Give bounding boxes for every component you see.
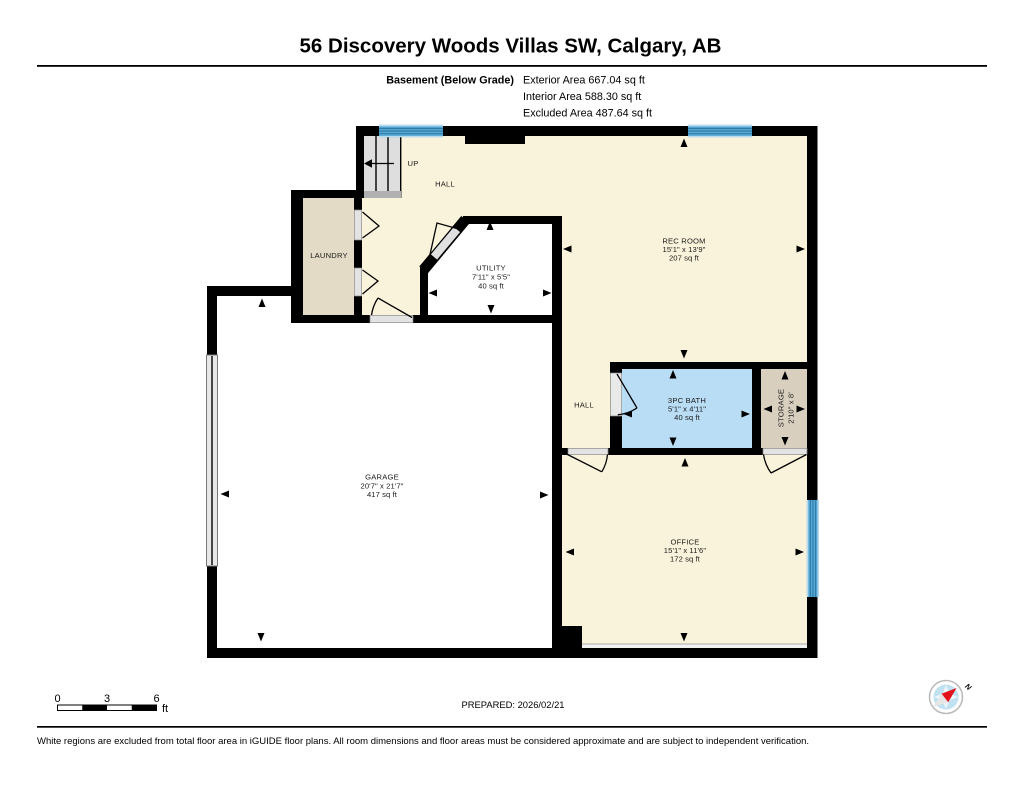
svg-text:7'11" x 5'5": 7'11" x 5'5" — [472, 273, 510, 282]
svg-text:Basement (Below Grade): Basement (Below Grade) — [386, 75, 514, 87]
svg-text:172 sq ft: 172 sq ft — [670, 555, 701, 564]
svg-text:3: 3 — [104, 693, 110, 705]
svg-text:Exterior Area 667.04 sq ft: Exterior Area 667.04 sq ft — [523, 75, 645, 87]
svg-text:0: 0 — [54, 693, 60, 705]
svg-text:HALL: HALL — [574, 401, 594, 410]
svg-text:Excluded Area 487.64 sq ft: Excluded Area 487.64 sq ft — [523, 107, 652, 119]
svg-text:417 sq ft: 417 sq ft — [367, 490, 398, 499]
svg-text:40 sq ft: 40 sq ft — [478, 282, 504, 291]
svg-text:GARAGE: GARAGE — [365, 473, 399, 482]
svg-text:UP: UP — [408, 159, 419, 168]
svg-text:Interior Area 588.30 sq ft: Interior Area 588.30 sq ft — [523, 91, 641, 103]
svg-text:LAUNDRY: LAUNDRY — [310, 251, 348, 260]
svg-text:6: 6 — [153, 693, 159, 705]
svg-text:40 sq ft: 40 sq ft — [674, 413, 700, 422]
svg-text:STORAGE: STORAGE — [777, 389, 786, 427]
svg-text:White regions are excluded fro: White regions are excluded from total fl… — [37, 736, 809, 747]
svg-text:56 Discovery Woods Villas SW,: 56 Discovery Woods Villas SW, Calgary, A… — [300, 35, 722, 58]
svg-text:ft: ft — [162, 703, 168, 715]
svg-text:2'10" x 8': 2'10" x 8' — [787, 392, 796, 424]
svg-text:207 sq ft: 207 sq ft — [669, 253, 700, 262]
svg-text:UTILITY: UTILITY — [476, 264, 506, 273]
svg-text:HALL: HALL — [435, 180, 455, 189]
svg-text:PREPARED: 2026/02/21: PREPARED: 2026/02/21 — [461, 699, 564, 710]
